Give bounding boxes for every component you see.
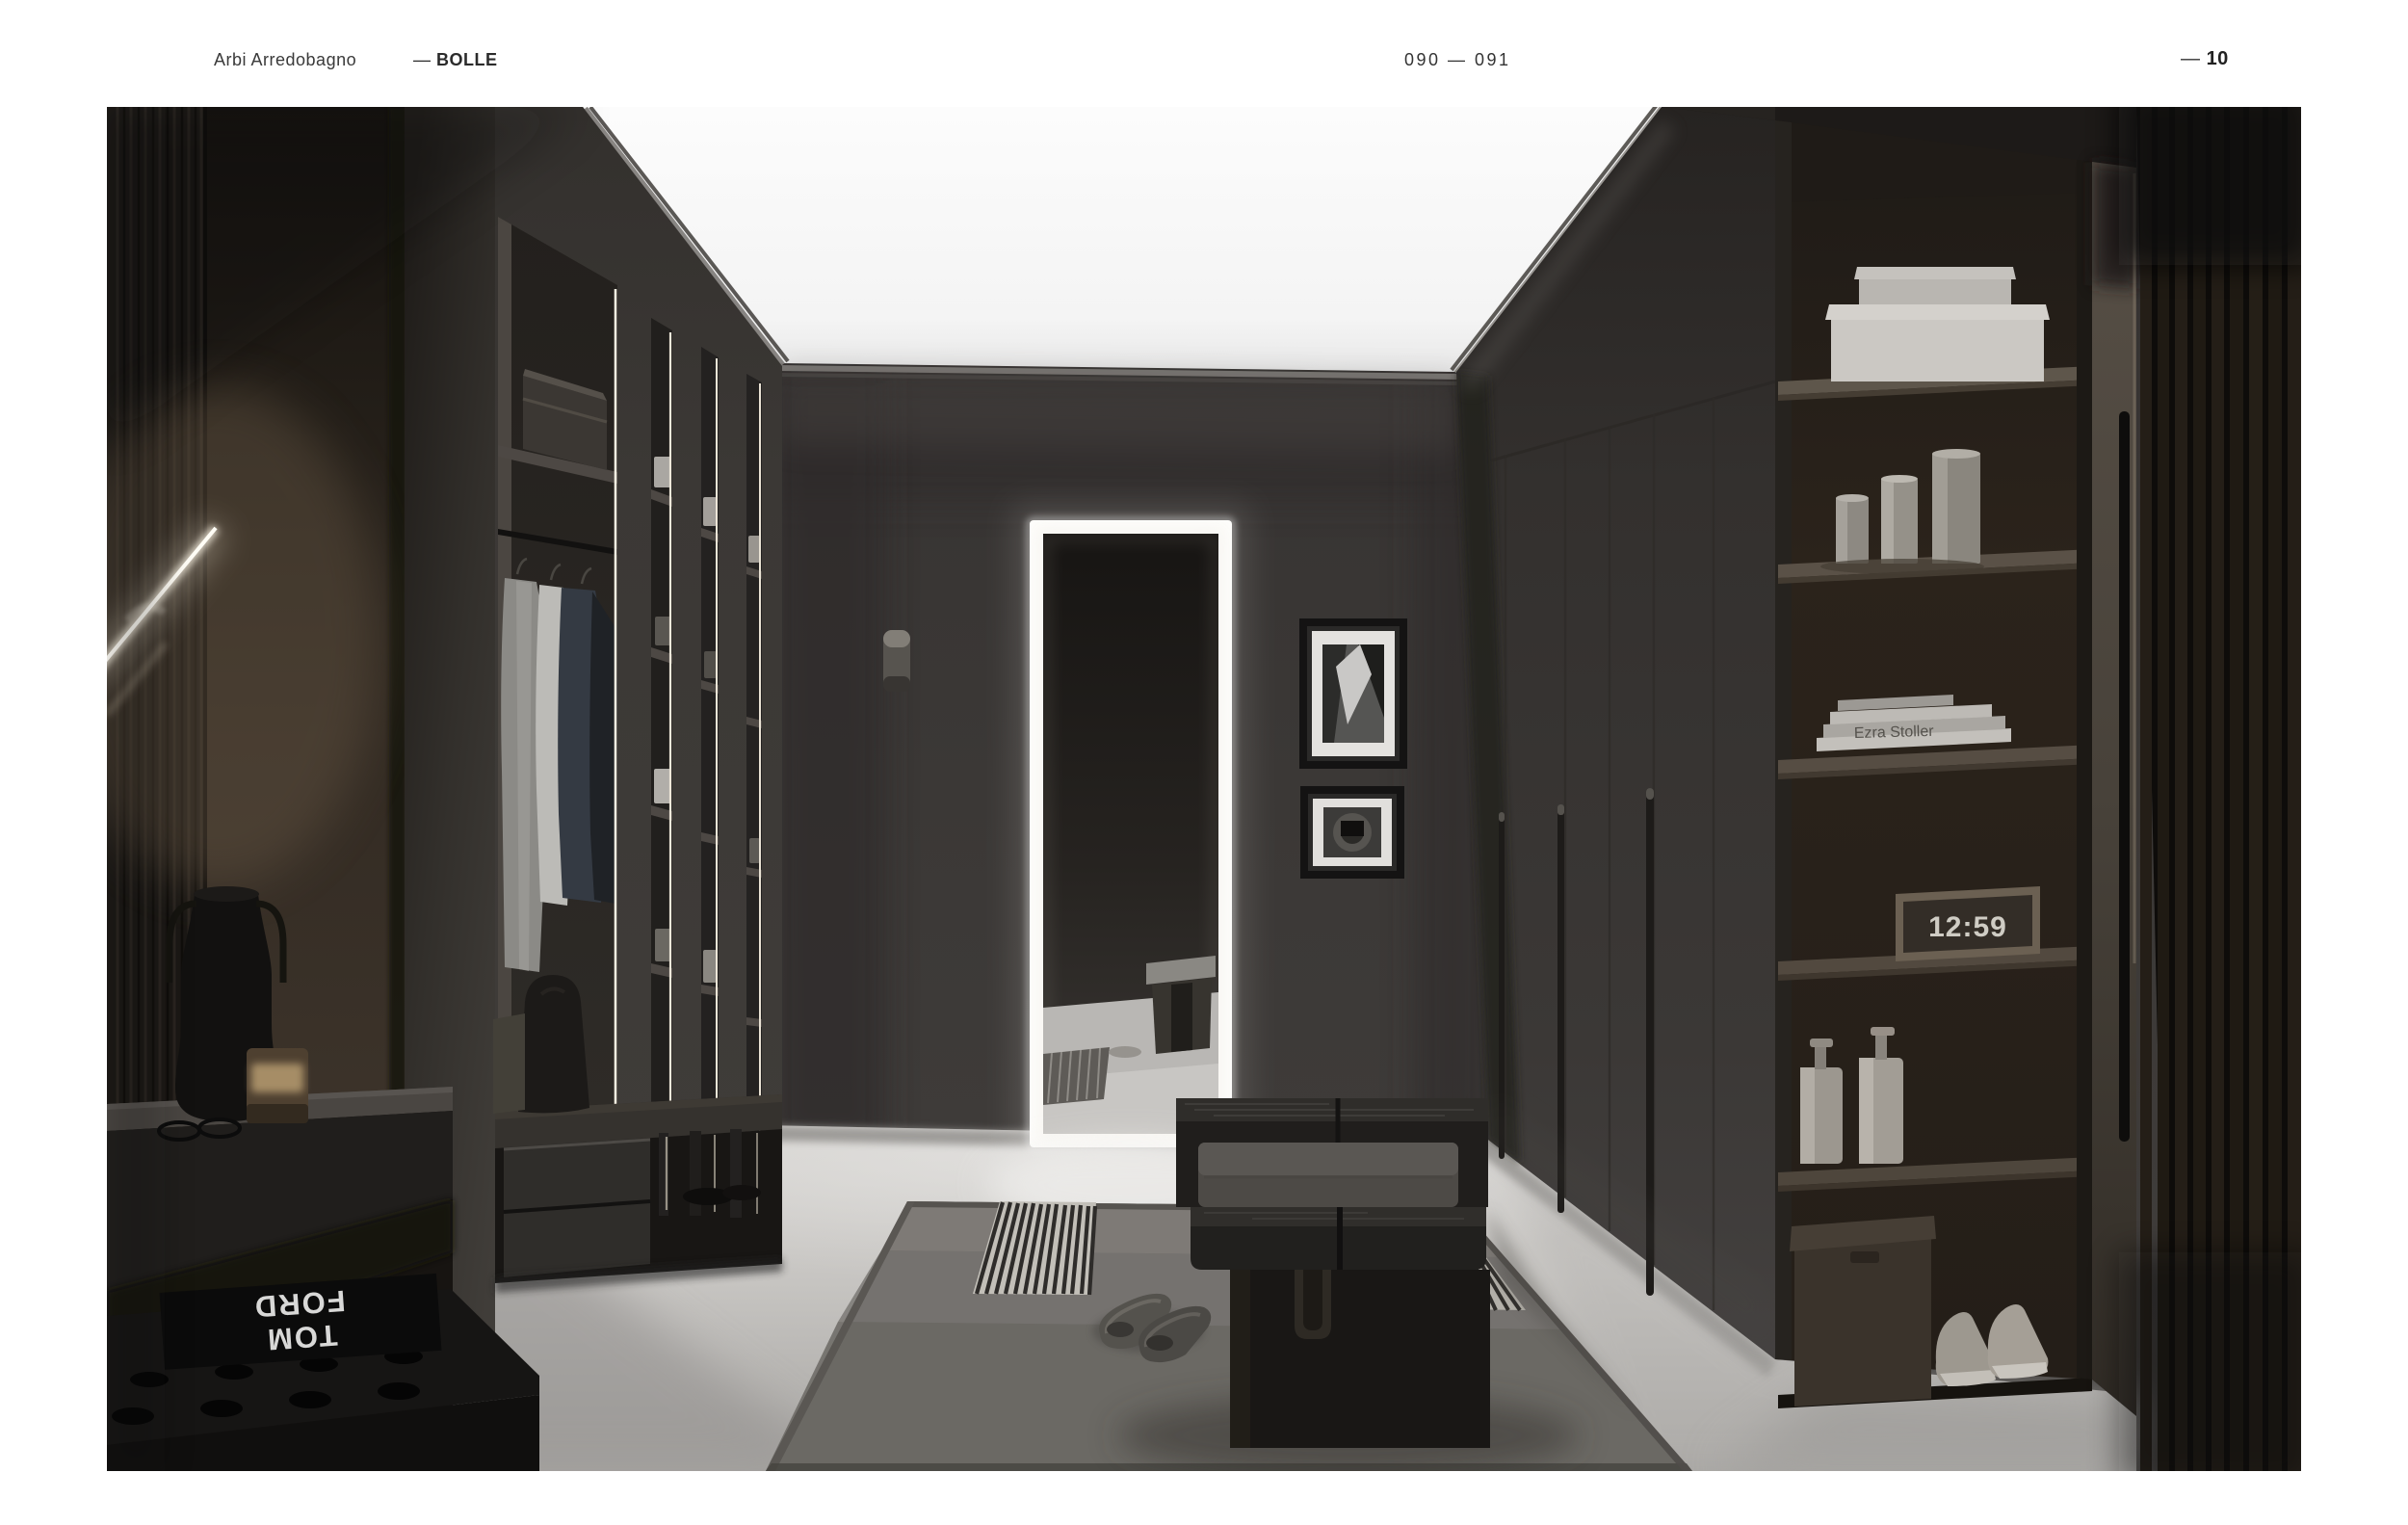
svg-text:12:59: 12:59: [1928, 911, 2007, 943]
svg-text:TOM: TOM: [265, 1318, 339, 1356]
svg-text:Ezra Stoller: Ezra Stoller: [1854, 723, 1935, 742]
svg-text:FORD: FORD: [252, 1284, 347, 1325]
